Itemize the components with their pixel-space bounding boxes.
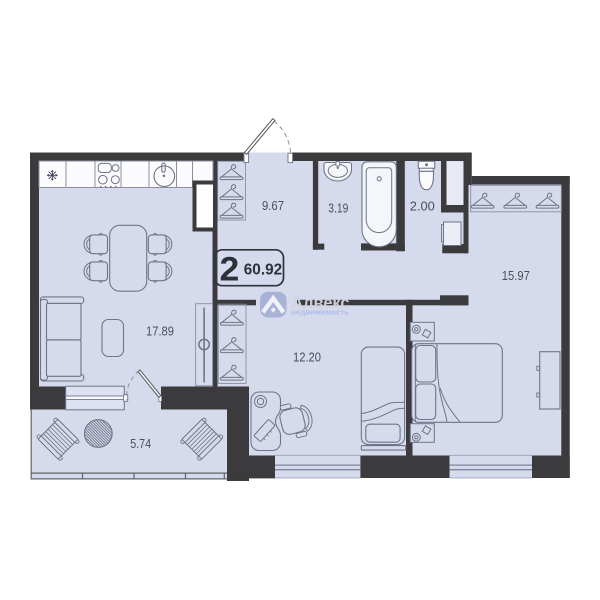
svg-text:3.19: 3.19: [328, 200, 348, 215]
svg-text:недвижимость: недвижимость: [291, 308, 349, 317]
svg-text:2: 2: [220, 250, 240, 288]
svg-text:15.97: 15.97: [502, 268, 530, 283]
svg-text:5.74: 5.74: [130, 436, 151, 451]
svg-text:2.00: 2.00: [410, 199, 435, 214]
svg-text:9.67: 9.67: [262, 198, 284, 213]
svg-text:12.20: 12.20: [293, 349, 321, 364]
svg-text:60.92: 60.92: [244, 262, 282, 279]
svg-text:17.89: 17.89: [146, 324, 174, 339]
